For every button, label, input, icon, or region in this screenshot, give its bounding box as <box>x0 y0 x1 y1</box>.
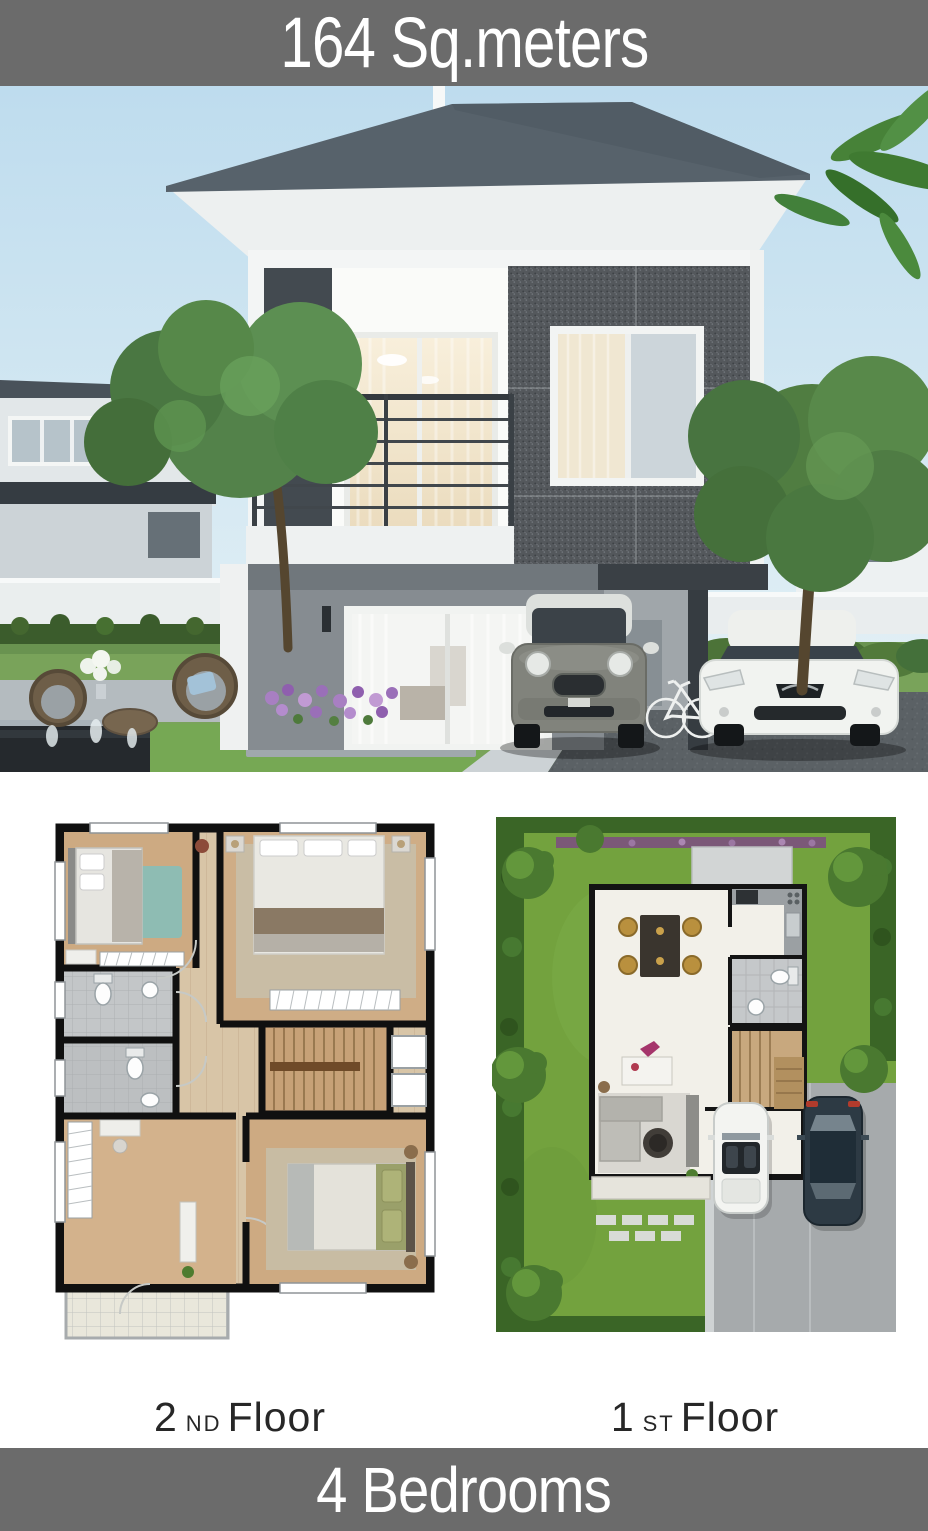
bed-bottomright <box>266 1145 418 1270</box>
label-second-floor: 2NDFloor <box>30 1394 450 1441</box>
stairs-1f <box>730 1029 804 1109</box>
second-floor-number: 2 <box>154 1394 178 1440</box>
first-floor-ordinal: ST <box>643 1411 675 1436</box>
entry-porch <box>692 847 792 887</box>
dark-car-topview <box>797 1097 869 1231</box>
terrace-strip <box>592 1177 710 1199</box>
header-banner: 164 Sq.meters <box>0 0 928 86</box>
house-photo <box>0 86 928 772</box>
page-title: 164 Sq.meters <box>280 3 648 84</box>
lower-wall-sconce <box>322 606 331 632</box>
bedrooms-label: 4 Bedrooms <box>317 1453 612 1527</box>
floorplan-first-floor <box>492 817 898 1332</box>
fence-left <box>0 578 254 626</box>
footer-banner: 4 Bedrooms <box>0 1448 928 1531</box>
bed-topright <box>226 836 416 1010</box>
second-floor-ordinal: ND <box>186 1411 222 1436</box>
second-floor-word: Floor <box>228 1394 326 1440</box>
convertible-car-topview <box>708 1103 774 1219</box>
wicker-chair-left <box>31 671 85 725</box>
upper-right-window <box>550 326 704 486</box>
floorplan-second-floor <box>30 822 450 1350</box>
first-floor-number: 1 <box>611 1394 635 1440</box>
label-first-floor: 1STFloor <box>492 1394 898 1441</box>
house-plan-sheet: 164 Sq.meters <box>0 0 928 1531</box>
bathroom-1f <box>732 959 802 1023</box>
first-floor-word: Floor <box>681 1394 779 1440</box>
wicker-chair-right <box>174 655 236 717</box>
